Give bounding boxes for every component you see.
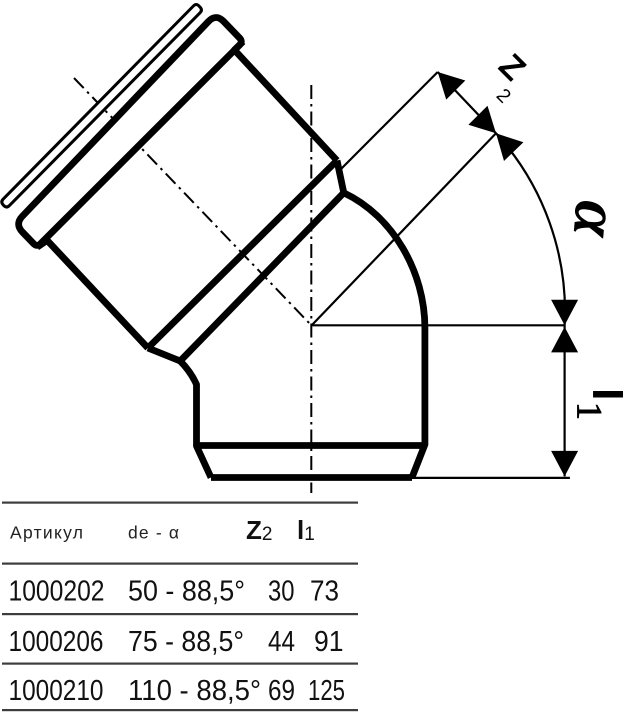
svg-text:91: 91 <box>314 626 344 658</box>
svg-text:69: 69 <box>268 675 295 707</box>
svg-text:73: 73 <box>310 576 339 608</box>
svg-text:α: α <box>558 198 626 241</box>
svg-text:1000202: 1000202 <box>9 576 105 608</box>
svg-text:44: 44 <box>268 626 295 658</box>
svg-text:50 - 88,5°: 50 - 88,5° <box>128 576 245 608</box>
svg-text:110 - 88,5°: 110 - 88,5° <box>128 675 261 707</box>
svg-text:1: 1 <box>570 402 610 420</box>
svg-text:Артикул: Артикул <box>10 523 83 543</box>
svg-text:1000210: 1000210 <box>9 675 104 707</box>
svg-text:30: 30 <box>268 576 295 608</box>
svg-text:1000206: 1000206 <box>9 626 104 658</box>
svg-text:75 - 88,5°: 75 - 88,5° <box>128 626 244 658</box>
svg-text:de - α: de - α <box>128 523 179 543</box>
svg-text:l: l <box>585 389 626 400</box>
svg-text:125: 125 <box>308 675 345 707</box>
